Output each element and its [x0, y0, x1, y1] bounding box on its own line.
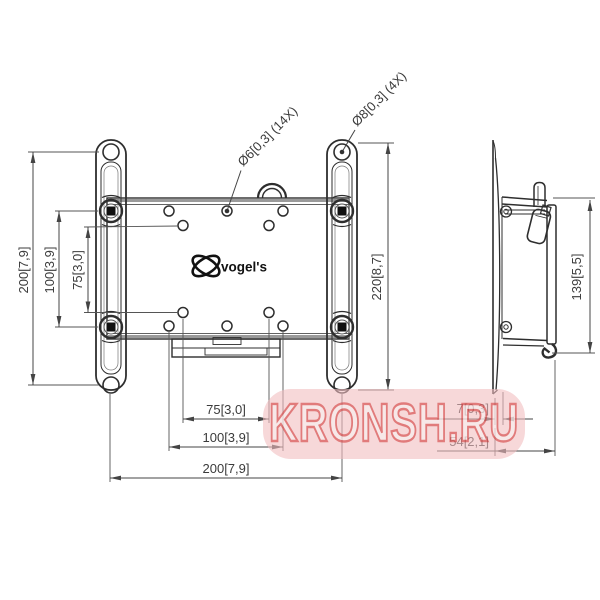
dim-label: 75[3,0] — [206, 402, 246, 417]
plate-hole-label: Ø6[0,3] (14X) — [235, 103, 301, 169]
dim-right-220: 220[8,7] — [358, 143, 394, 390]
watermark-text: KRONSH.RU — [269, 393, 519, 453]
dim-label: 100[3,9] — [42, 247, 57, 294]
wall-rail-right — [327, 140, 357, 393]
dim-label: 220[8,7] — [369, 254, 384, 301]
vogels-logo-text: vogel's — [221, 260, 267, 275]
watermark: KRONSH.RU — [263, 389, 525, 459]
wall-hole-label: Ø8[0,3] (4X) — [349, 68, 410, 129]
dim-label: 200[7,9] — [16, 247, 31, 294]
bottom-tab — [172, 338, 280, 358]
dim-left-200: 200[7,9] — [16, 152, 99, 385]
dim-label: 75[3,0] — [70, 250, 85, 290]
vogels-logo: vogel's — [189, 252, 267, 281]
wall-rail-left — [96, 140, 126, 393]
wall-hole-top-left — [103, 144, 119, 160]
side-top-hook — [534, 183, 545, 208]
dim-left-75: 75[3,0] — [70, 226, 178, 313]
mount-technical-drawing: vogel's Ø6[0,3] (14X) Ø8[0,3] (4X) 200[7… — [0, 0, 600, 600]
dim-label: 200[7,9] — [203, 461, 250, 476]
dim-label: 139[5,5] — [569, 254, 584, 301]
dim-bottom-75: 75[3,0] — [183, 319, 269, 423]
locking-knob — [526, 205, 551, 245]
vogels-butterfly-icon — [189, 252, 222, 281]
dim-side-139: 139[5,5] — [552, 198, 595, 353]
dim-label: 100[3,9] — [203, 430, 250, 445]
side-bracket-profile — [502, 197, 556, 358]
side-wall-rail — [493, 140, 500, 394]
hanger-arc — [258, 184, 286, 198]
bottom-hook-curl — [543, 344, 556, 358]
